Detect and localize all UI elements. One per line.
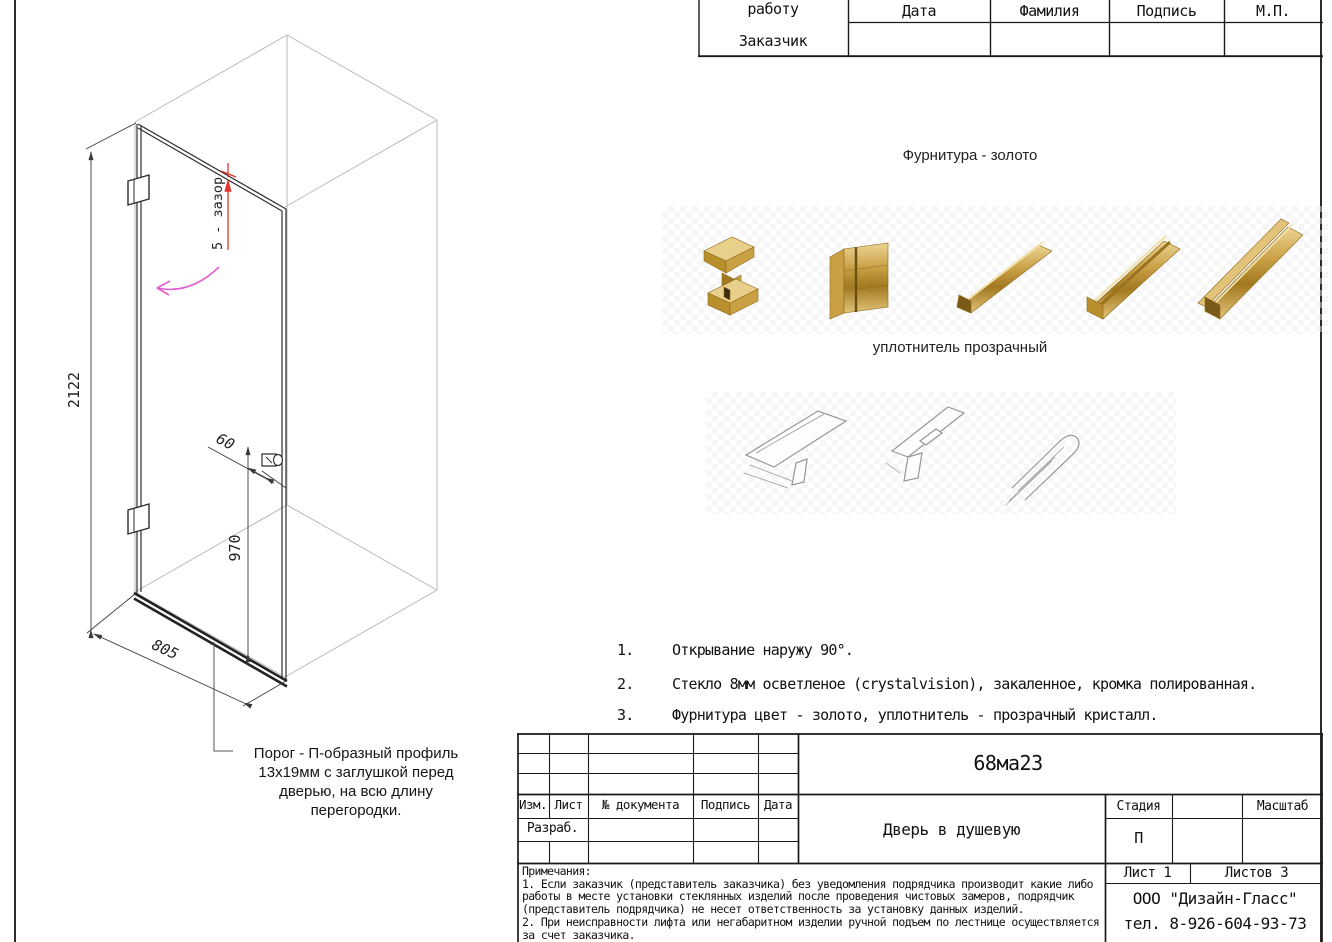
approval-table: Запустить в работу Заказчик Дата Фамилия… xyxy=(698,0,1323,58)
hinge-image xyxy=(830,243,888,319)
seal-images xyxy=(700,393,1170,523)
isometric-door-drawing: 2122 805 970 60 5 - зазор xyxy=(0,0,520,830)
approval-col-date: Дата xyxy=(848,2,990,20)
tb-col-sign: Подпись xyxy=(693,797,758,812)
tb-stage-label: Стадия xyxy=(1105,799,1172,814)
drawing-sheet: { "sheet": { "approval_table": { "row_la… xyxy=(0,0,1332,942)
approval-col-stamp: М.П. xyxy=(1224,2,1322,20)
door-swing-arrow xyxy=(157,267,219,295)
approval-row-label-top: Запустить в работу xyxy=(698,0,848,18)
hinge-top-icon xyxy=(128,175,149,205)
tb-doc-code: 68ма23 xyxy=(798,751,1218,775)
tb-notes-box: Примечания: 1. Если заказчик (представит… xyxy=(522,865,1100,942)
knob-image xyxy=(704,237,758,315)
dimension-lines xyxy=(86,123,286,706)
hardware-section-title: Фурнитура - золото xyxy=(660,147,1280,164)
approval-col-signature: Подпись xyxy=(1109,2,1224,20)
f-profile-image xyxy=(1198,219,1303,319)
seal-section-title: уплотнитель прозрачный xyxy=(660,339,1260,356)
spec-note-text: Фурнитура цвет - золото, уплотнитель - п… xyxy=(672,706,1158,724)
tb-doc-title: Дверь в душевую xyxy=(798,820,1105,839)
tb-notes-title: Примечания: xyxy=(522,865,1100,878)
dim-knob-height-label: 970 xyxy=(226,534,244,561)
tb-phone: тел. 8-926-604-93-73 xyxy=(1107,914,1323,933)
hinge-bottom-icon xyxy=(128,504,149,534)
u-profile-large-image xyxy=(1087,236,1180,319)
knob-icon xyxy=(262,454,283,466)
tb-note-2: 2. При неисправности лифта или негабарит… xyxy=(522,916,1100,941)
spec-note-text: Стекло 8мм осветленое (crystalvision), з… xyxy=(672,675,1256,693)
tb-col-doc: № документа xyxy=(588,797,693,812)
tb-sheets-total: Листов 3 xyxy=(1190,865,1323,881)
title-block: Изм. Лист № документа Подпись Дата Разра… xyxy=(517,733,1323,942)
gap-note-label: 5 - зазор xyxy=(210,177,226,250)
u-profile-small-image xyxy=(957,242,1052,313)
dim-knob-offset-label: 60 xyxy=(213,429,237,453)
hardware-images xyxy=(660,195,1332,345)
seal-profile-bulb-image xyxy=(1006,435,1079,505)
tb-sheet-no: Лист 1 xyxy=(1105,865,1190,881)
tb-scale-label: Масштаб xyxy=(1242,799,1323,814)
seal-profile-f-image xyxy=(744,411,846,488)
approval-row-label-bottom: Заказчик xyxy=(698,32,848,50)
tb-company: ООО "Дизайн-Гласс" xyxy=(1107,889,1323,908)
seal-profile-h-image xyxy=(886,407,964,481)
spec-note-text: Открывание наружу 90°. xyxy=(672,641,853,659)
threshold-callout: Порог - П-образный профиль 13х19мм с заг… xyxy=(240,744,472,820)
approval-col-name: Фамилия xyxy=(990,2,1109,20)
spec-note-num: 2. xyxy=(617,675,633,693)
spec-note-num: 1. xyxy=(617,641,633,659)
tb-note-1: 1. Если заказчик (представитель заказчик… xyxy=(522,878,1100,916)
dim-height-label: 2122 xyxy=(65,372,83,408)
tb-col-izm: Изм. xyxy=(517,797,549,812)
tb-razrab: Разраб. xyxy=(517,821,588,836)
tb-stage-value: П xyxy=(1105,829,1172,847)
dim-width-label: 805 xyxy=(149,636,181,664)
tb-col-date: Дата xyxy=(758,797,798,812)
tb-col-list: Лист xyxy=(549,797,588,812)
spec-note-num: 3. xyxy=(617,706,633,724)
